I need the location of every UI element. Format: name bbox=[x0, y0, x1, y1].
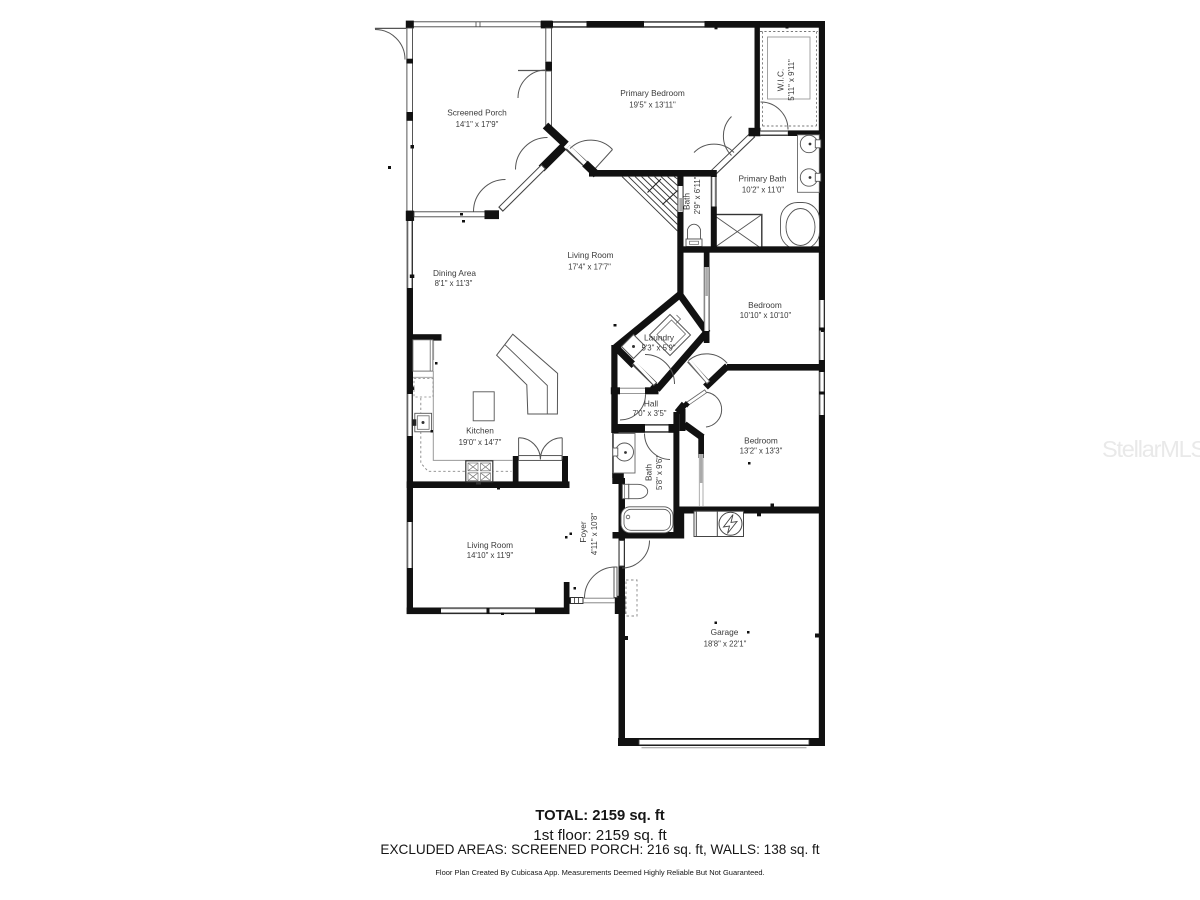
svg-text:Bath: Bath bbox=[682, 193, 692, 210]
svg-text:8'1" x 11'3": 8'1" x 11'3" bbox=[435, 279, 473, 288]
svg-text:Bath: Bath bbox=[644, 464, 654, 481]
svg-text:Primary Bedroom: Primary Bedroom bbox=[620, 88, 685, 98]
svg-text:Dining Area: Dining Area bbox=[433, 268, 476, 278]
svg-text:W.I.C.: W.I.C. bbox=[776, 69, 786, 92]
svg-text:5'8" x 9'6": 5'8" x 9'6" bbox=[655, 456, 664, 490]
svg-text:17'4" x 17'7": 17'4" x 17'7" bbox=[568, 263, 611, 272]
svg-text:5'3" x 5'9": 5'3" x 5'9" bbox=[641, 344, 675, 353]
svg-text:Living Room: Living Room bbox=[567, 250, 613, 260]
svg-text:5'11" x 9'11": 5'11" x 9'11" bbox=[787, 59, 796, 101]
svg-text:Laundry: Laundry bbox=[644, 333, 675, 343]
svg-text:10'2" x 11'0": 10'2" x 11'0" bbox=[742, 186, 784, 195]
svg-text:18'8" x 22'1": 18'8" x 22'1" bbox=[704, 640, 747, 649]
svg-text:Bedroom: Bedroom bbox=[748, 300, 782, 310]
svg-text:Screened Porch: Screened Porch bbox=[447, 108, 507, 118]
svg-text:Foyer: Foyer bbox=[578, 521, 588, 542]
svg-text:13'2" x 13'3": 13'2" x 13'3" bbox=[740, 447, 783, 456]
svg-text:14'10" x 11'9": 14'10" x 11'9" bbox=[467, 551, 514, 560]
svg-text:Kitchen: Kitchen bbox=[466, 426, 494, 436]
svg-text:19'5" x 13'11": 19'5" x 13'11" bbox=[629, 101, 676, 110]
svg-text:Bedroom: Bedroom bbox=[744, 436, 778, 446]
svg-text:19'0" x 14'7": 19'0" x 14'7" bbox=[459, 438, 502, 447]
svg-text:4'11" x 10'8": 4'11" x 10'8" bbox=[590, 513, 599, 555]
svg-text:Primary Bath: Primary Bath bbox=[739, 174, 787, 184]
svg-text:Garage: Garage bbox=[711, 627, 739, 637]
svg-text:7'0" x 3'5": 7'0" x 3'5" bbox=[632, 409, 666, 418]
svg-text:Hall: Hall bbox=[644, 399, 658, 409]
svg-text:Living Room: Living Room bbox=[467, 540, 513, 550]
svg-text:2'9" x 6'11": 2'9" x 6'11" bbox=[693, 176, 702, 214]
svg-text:10'10" x 10'10": 10'10" x 10'10" bbox=[740, 311, 792, 320]
svg-text:14'1" x 17'9": 14'1" x 17'9" bbox=[456, 120, 499, 129]
